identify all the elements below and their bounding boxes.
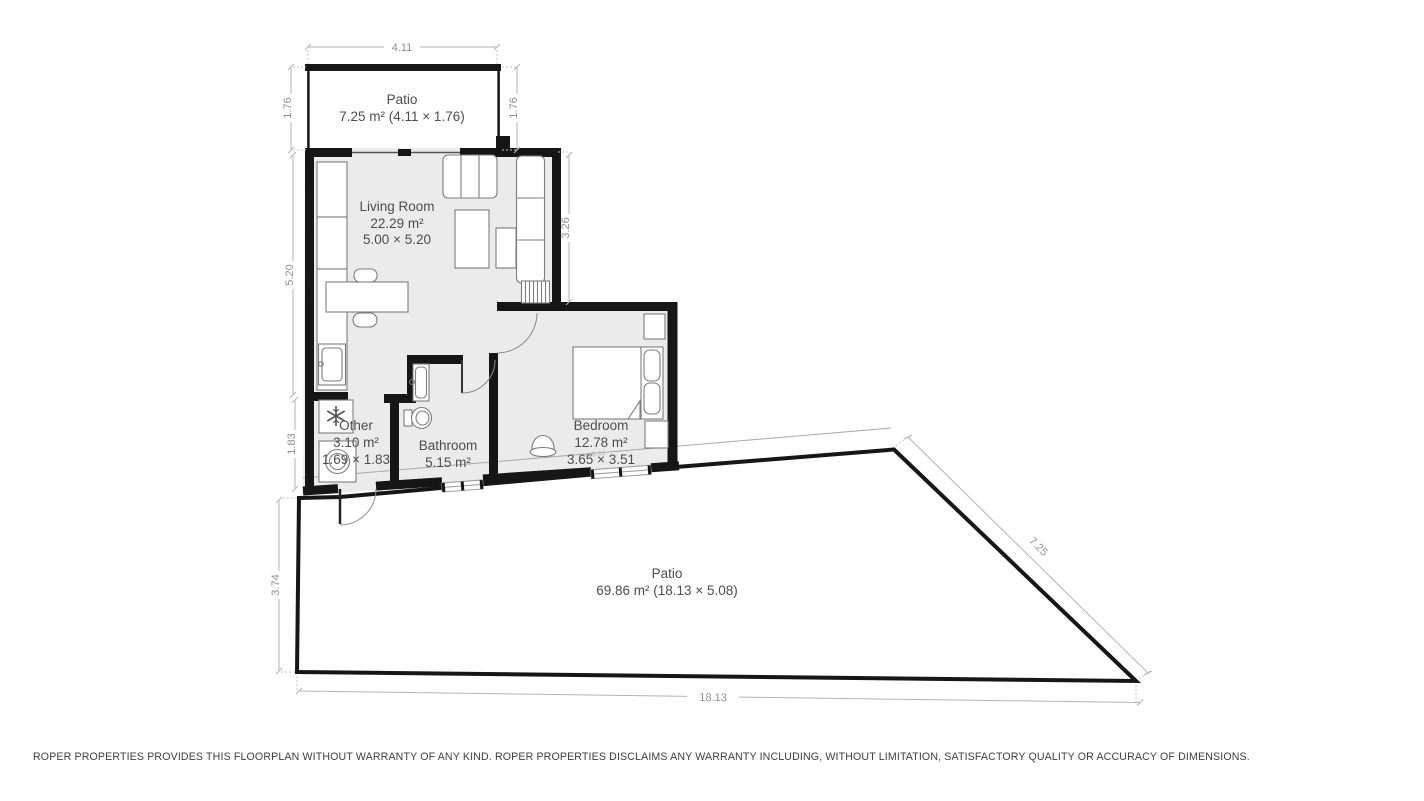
dining-table	[326, 282, 408, 312]
dim-patio-top-width: 4.11	[392, 42, 413, 54]
armchair-base	[530, 448, 556, 457]
wardrobe	[317, 217, 347, 269]
dim-patio-top-left: 1.76	[282, 97, 294, 118]
room-label-bathroom: Bathroom	[419, 438, 478, 453]
disclaimer-text: ROPER PROPERTIES PROVIDES THIS FLOORPLAN…	[33, 751, 1250, 763]
pillow	[644, 383, 660, 414]
dim-other-left: 1.83	[286, 433, 298, 454]
side-table	[496, 228, 516, 268]
dim-patio-bottom-left: 3.74	[270, 574, 282, 595]
room-label-other: Other	[339, 418, 373, 433]
wall-segment	[651, 466, 679, 468]
sliding-door-tick	[398, 149, 411, 156]
floorplan-page: 4.11 1.76 1.76 5.20 1.83 3.26 3.74	[0, 0, 1424, 801]
dim-patio-top-right: 1.76	[508, 97, 520, 118]
room-area-patio-top: 7.25 m² (4.11 × 1.76)	[339, 109, 464, 124]
kitchen-sink-basin	[322, 348, 342, 381]
dim-patio-bottom-width: 18.13	[699, 692, 727, 704]
dim-living-left: 5.20	[284, 264, 296, 285]
room-area-other: 3.10 m²	[333, 435, 379, 450]
stool	[354, 269, 377, 282]
stool	[353, 313, 377, 327]
dim-living-right: 3.26	[560, 217, 572, 238]
room-label-bedroom: Bedroom	[574, 418, 629, 433]
room-area-patio-bottom: 69.86 m² (18.13 × 5.08)	[596, 583, 737, 598]
sofa	[517, 156, 545, 283]
room-area-bedroom: 12.78 m²	[574, 435, 628, 450]
coffee-table	[455, 210, 489, 268]
room-dims-other: 1.69 × 1.83	[322, 452, 390, 467]
pillow	[644, 350, 660, 381]
room-label-patio-bottom: Patio	[652, 566, 683, 581]
room-dims-living: 5.00 × 5.20	[363, 232, 431, 247]
wardrobe	[317, 162, 347, 217]
room-label-patio-top: Patio	[387, 92, 418, 107]
room-area-bathroom: 5.15 m²	[425, 455, 471, 470]
wall-segment	[376, 482, 442, 486]
room-area-living: 22.29 m²	[370, 216, 424, 231]
toilet-tank	[404, 410, 412, 426]
bathroom-sink-basin	[416, 367, 427, 398]
nightstand	[644, 314, 665, 339]
room-label-living: Living Room	[359, 199, 434, 214]
loveseat	[443, 155, 497, 198]
wall-segment	[303, 489, 338, 491]
nightstand	[645, 421, 668, 448]
floorplan-svg: 4.11 1.76 1.76 5.20 1.83 3.26 3.74	[0, 0, 1424, 801]
stairs-icon	[522, 281, 550, 303]
